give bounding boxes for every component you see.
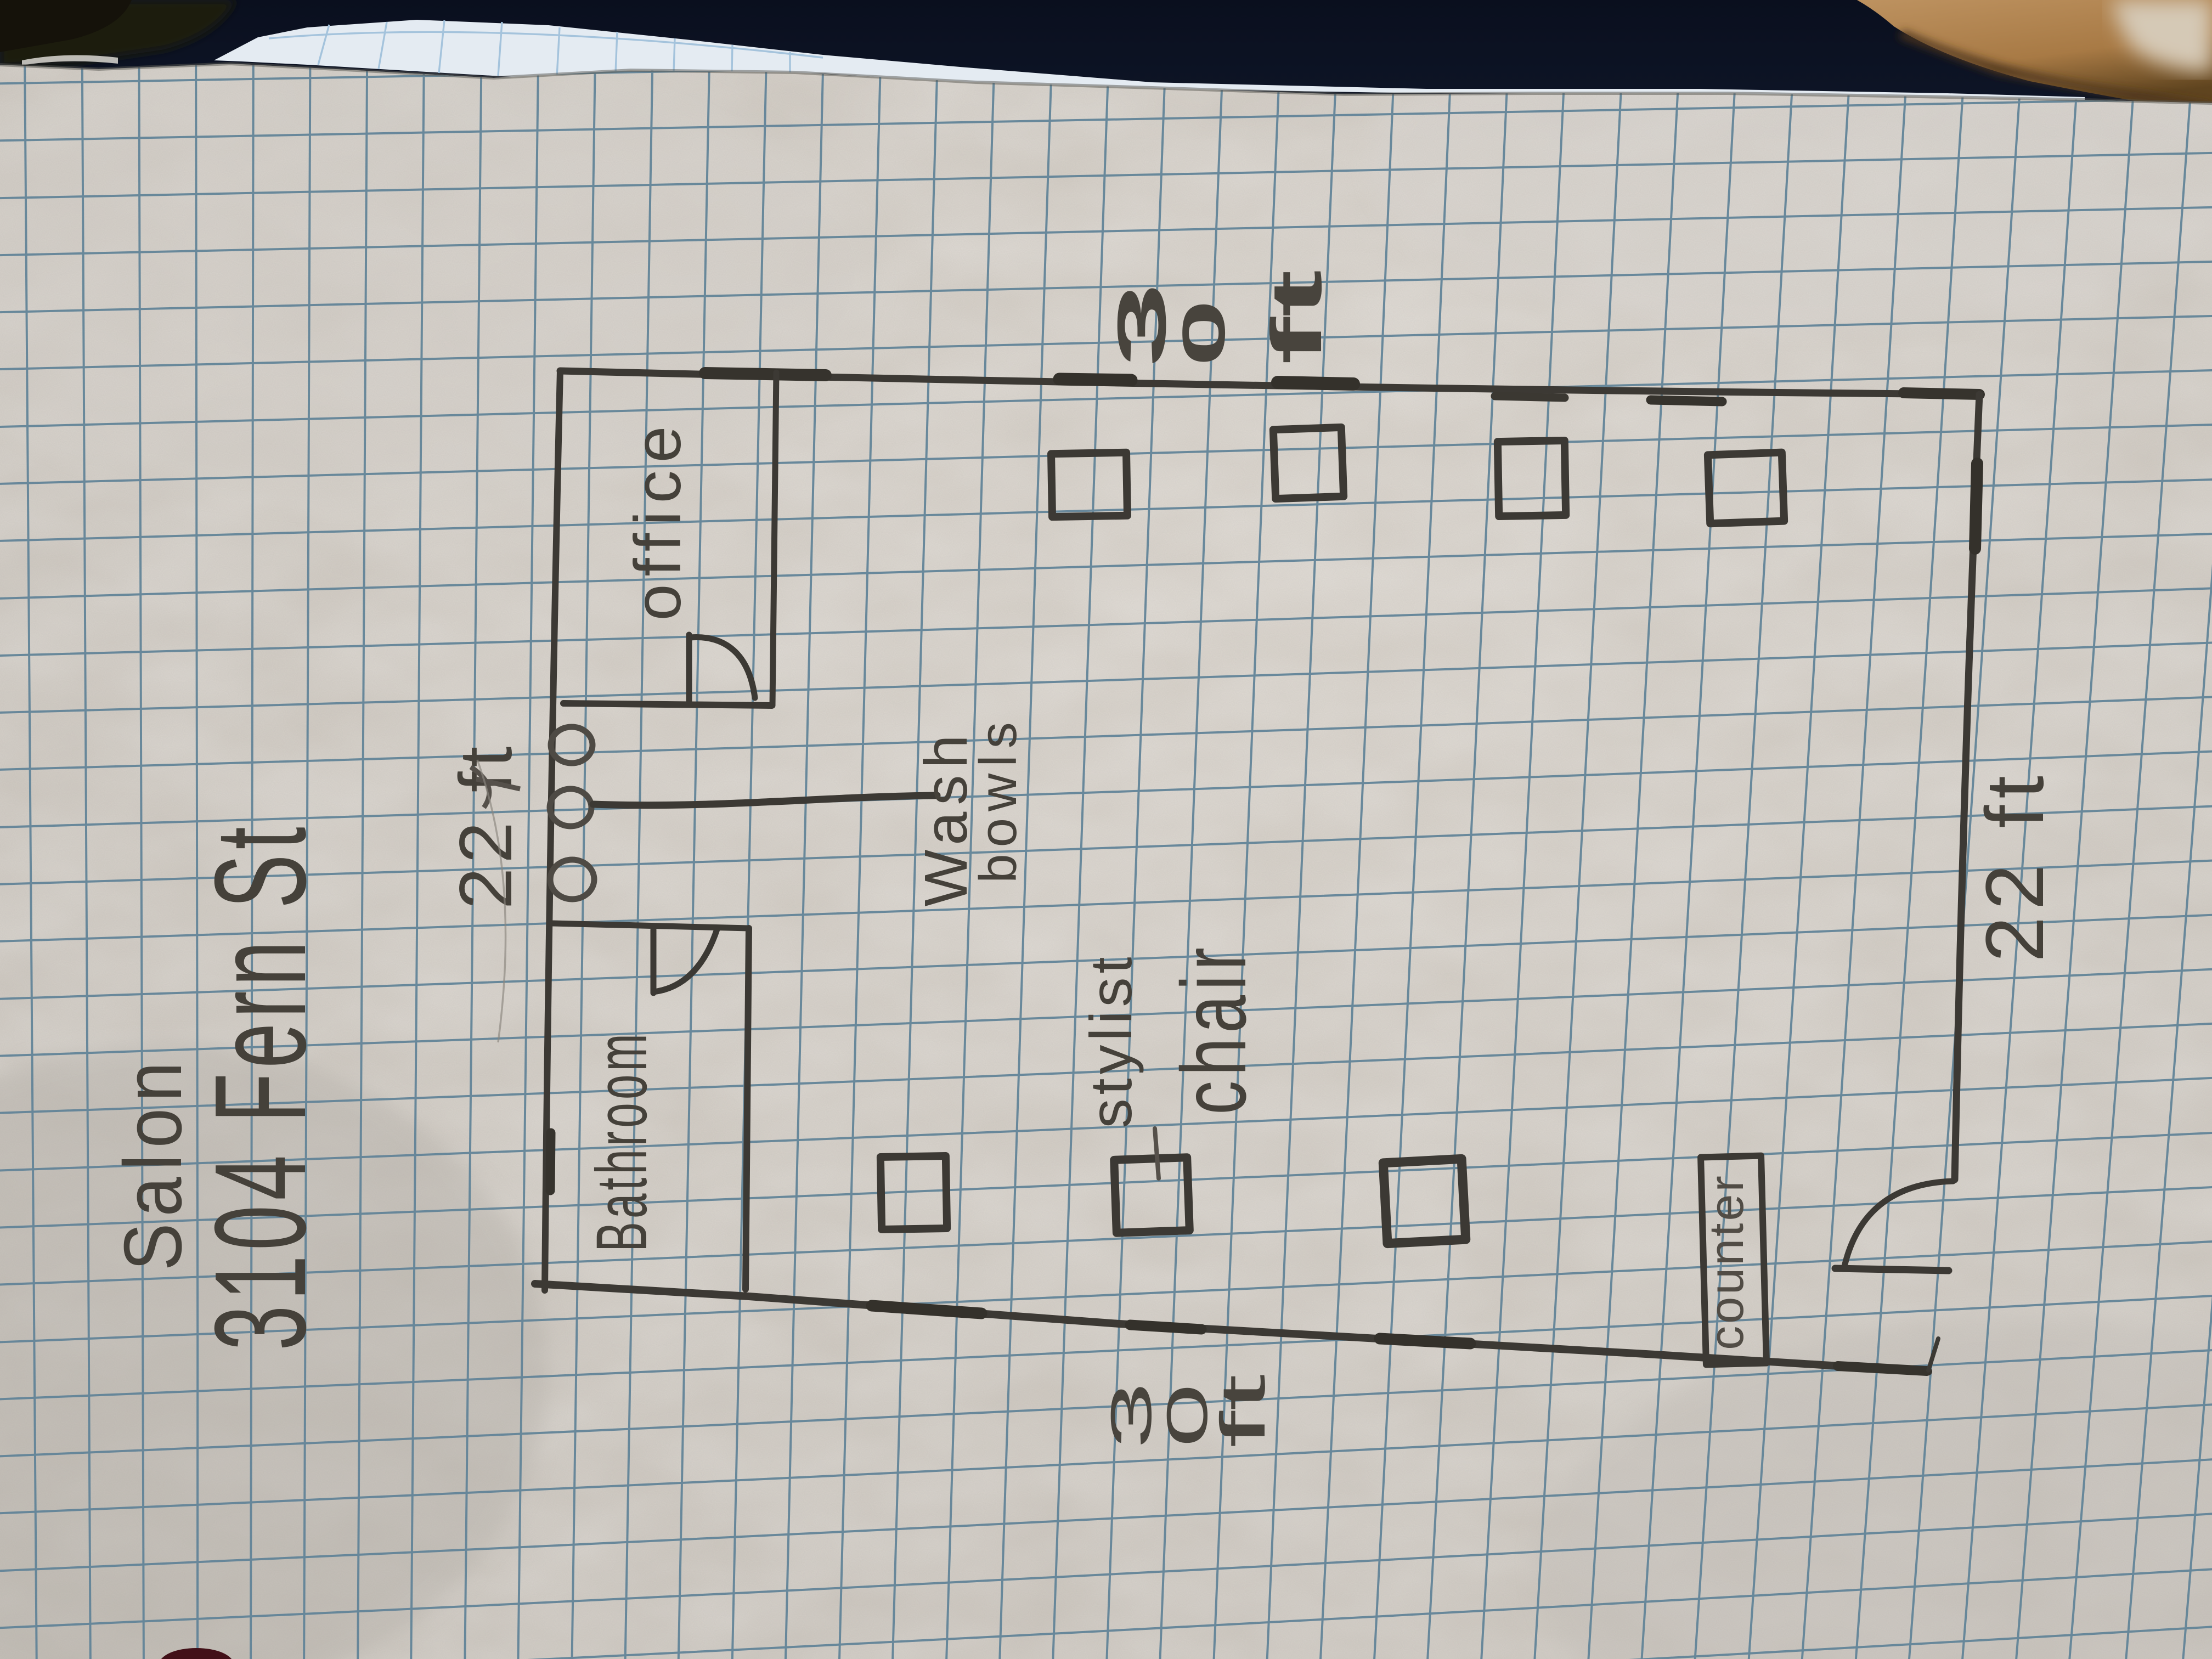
svg-text:office: office [621,419,695,621]
svg-text:Bathroom: Bathroom [582,1030,662,1251]
svg-text:3104 Fern St: 3104 Fern St [187,822,332,1351]
svg-text:3: 3 [1099,1382,1163,1449]
svg-text:22 ft: 22 ft [444,742,527,910]
svg-text:22 ft: 22 ft [1968,769,2061,962]
svg-text:0: 0 [1170,300,1238,366]
svg-text:ft: ft [1256,269,1336,364]
svg-text:ft: ft [1208,1374,1278,1448]
svg-text:chair: chair [1163,943,1265,1115]
svg-text:3: 3 [1104,283,1180,367]
svg-text:Salon: Salon [106,1056,199,1271]
svg-text:counter: counter [1699,1173,1753,1350]
svg-text:stylist: stylist [1077,953,1144,1128]
svg-text:bowls: bowls [969,715,1028,883]
